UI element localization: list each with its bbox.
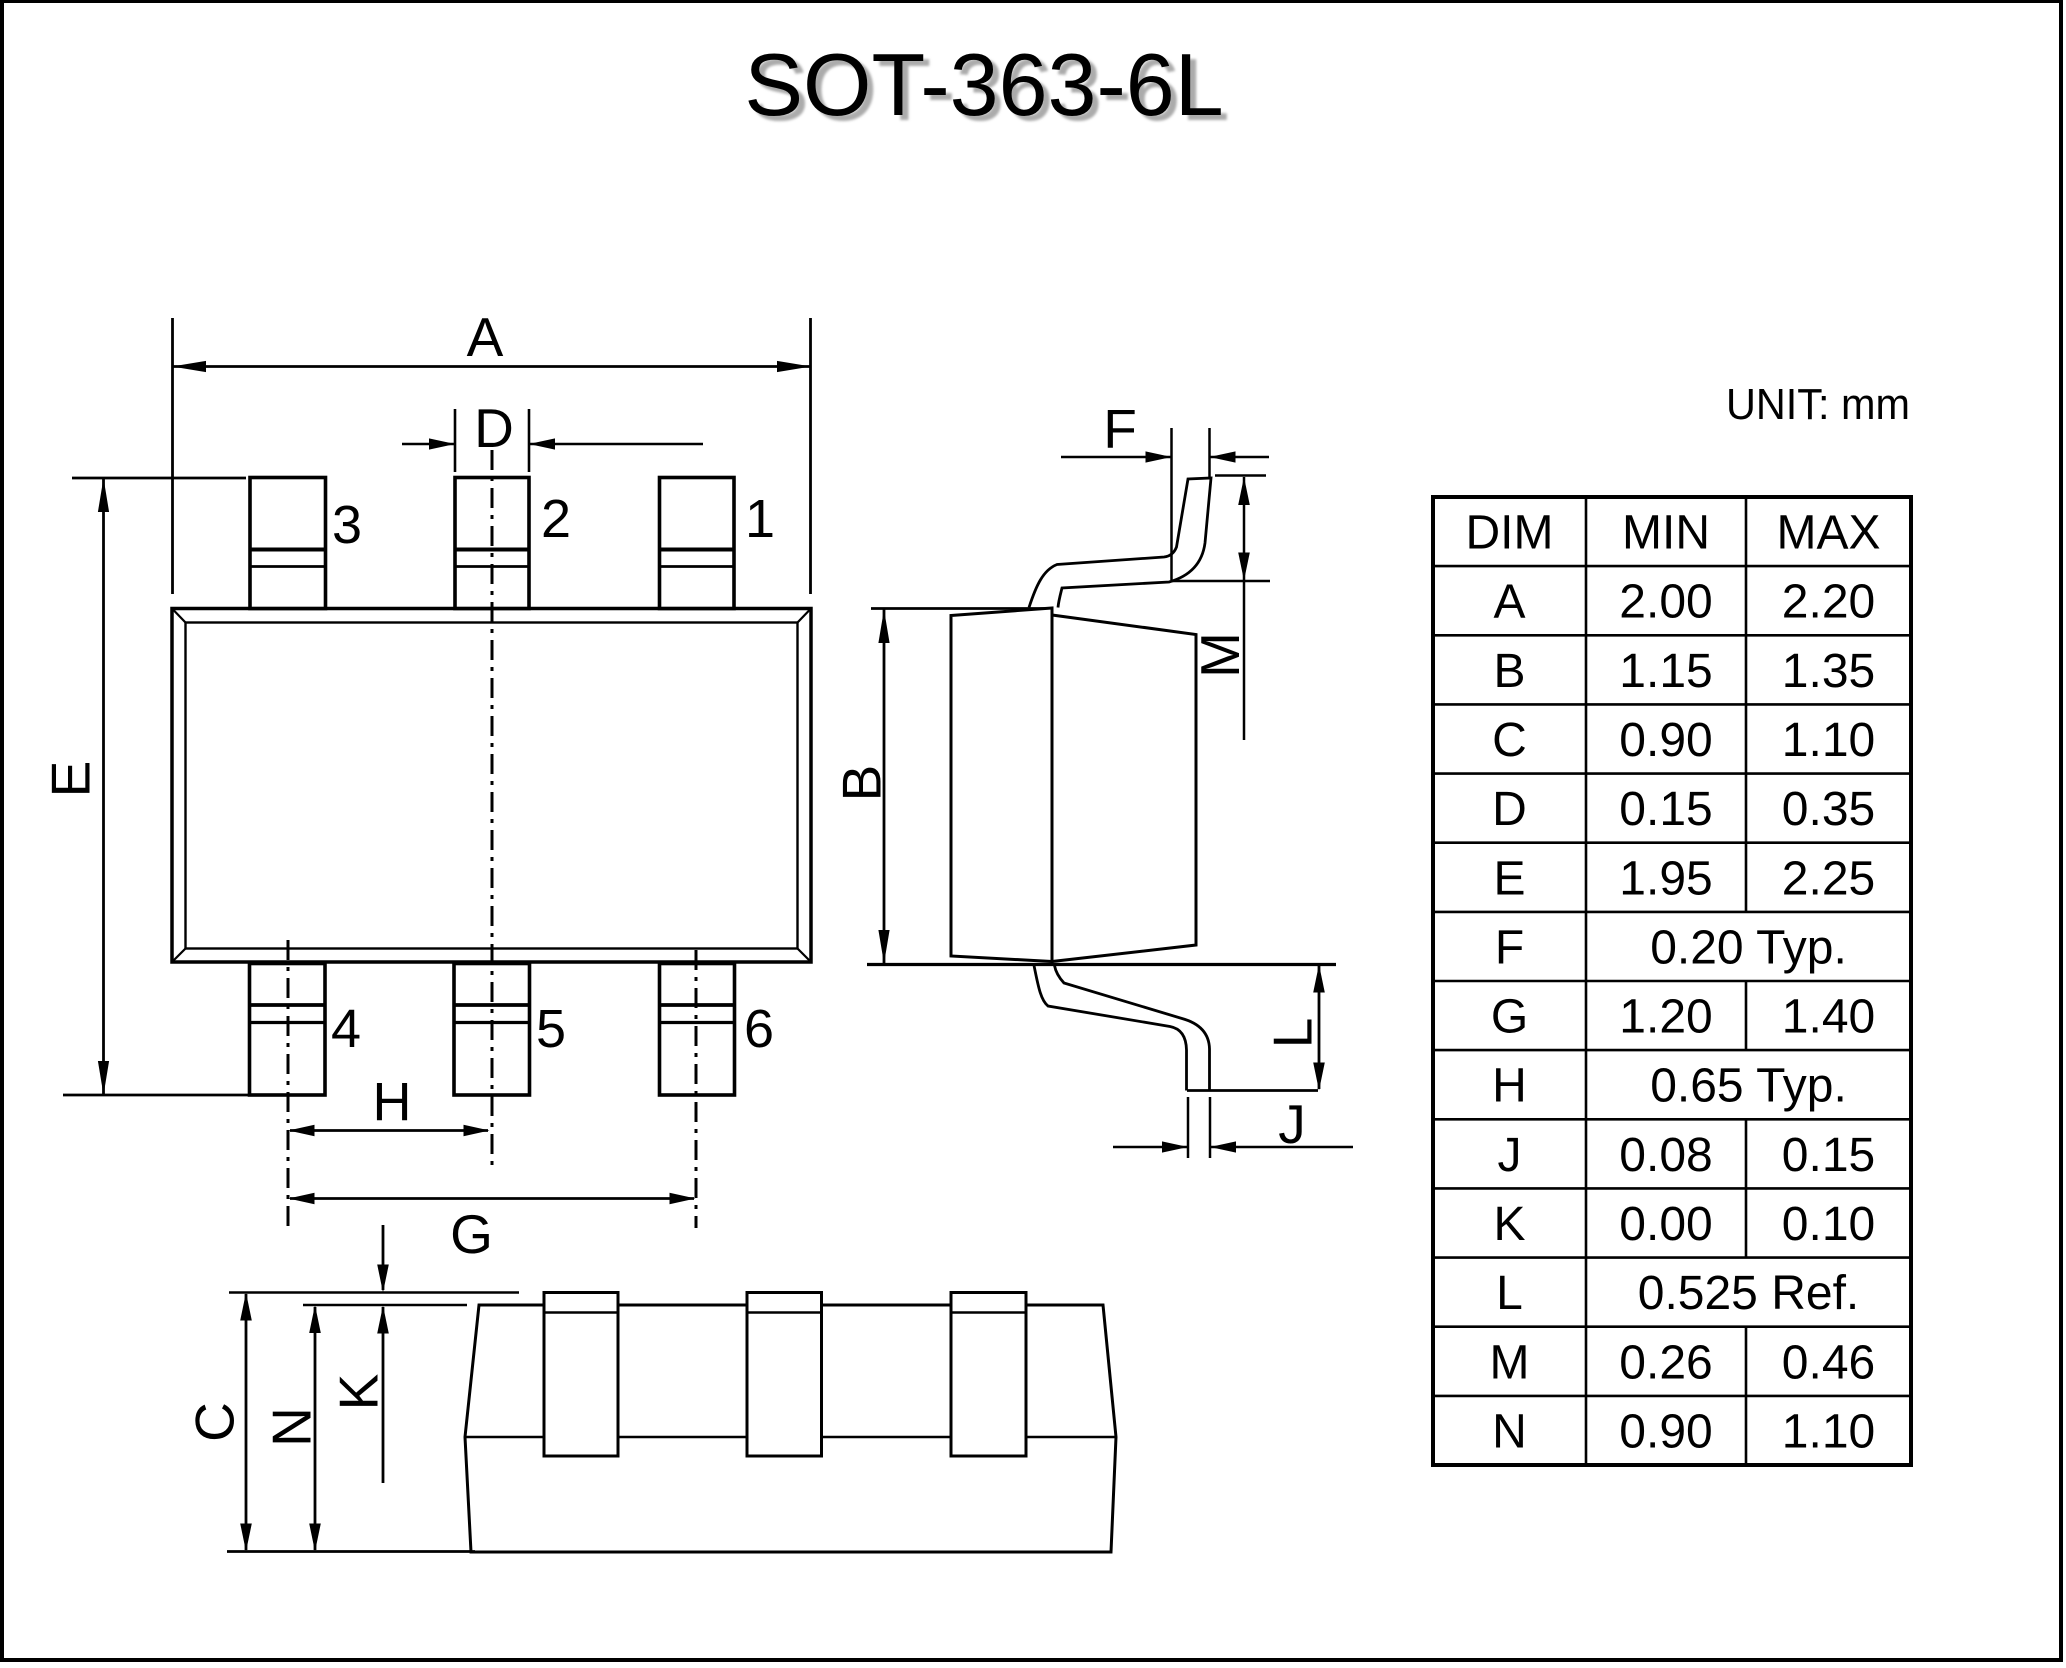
svg-text:L: L (1496, 1267, 1523, 1320)
svg-text:5: 5 (536, 999, 566, 1059)
svg-text:F: F (1103, 398, 1137, 460)
svg-text:K: K (1493, 1198, 1525, 1251)
svg-text:J: J (1498, 1129, 1522, 1182)
svg-text:UNIT: mm: UNIT: mm (1726, 380, 1910, 429)
svg-text:A: A (467, 306, 504, 368)
svg-text:M: M (1490, 1336, 1530, 1389)
svg-text:SOT-363-6L: SOT-363-6L (744, 35, 1223, 134)
svg-text:G: G (450, 1203, 493, 1265)
svg-text:0.08: 0.08 (1619, 1129, 1712, 1182)
svg-text:MIN: MIN (1622, 507, 1710, 560)
svg-text:H: H (373, 1072, 412, 1132)
svg-text:E: E (40, 761, 102, 798)
svg-text:0.90: 0.90 (1619, 1405, 1712, 1458)
svg-text:0.90: 0.90 (1619, 714, 1712, 767)
svg-text:2.00: 2.00 (1619, 576, 1712, 629)
svg-text:N: N (261, 1407, 323, 1447)
svg-text:1.40: 1.40 (1782, 991, 1875, 1044)
svg-text:6: 6 (744, 999, 774, 1059)
svg-text:0.00: 0.00 (1619, 1198, 1712, 1251)
svg-text:N: N (1492, 1405, 1527, 1458)
svg-text:C: C (1492, 714, 1527, 767)
svg-text:2: 2 (541, 489, 571, 549)
svg-text:2.25: 2.25 (1782, 852, 1875, 905)
svg-text:0.35: 0.35 (1782, 783, 1875, 836)
svg-text:B: B (1493, 645, 1525, 698)
svg-text:0.10: 0.10 (1782, 1198, 1875, 1251)
svg-text:0.65 Typ.: 0.65 Typ. (1650, 1060, 1847, 1113)
svg-text:DIM: DIM (1466, 507, 1554, 560)
svg-text:1: 1 (745, 489, 775, 549)
svg-text:B: B (831, 765, 893, 802)
svg-text:0.46: 0.46 (1782, 1336, 1875, 1389)
svg-text:1.20: 1.20 (1619, 991, 1712, 1044)
svg-text:0.20 Typ.: 0.20 Typ. (1650, 921, 1847, 974)
svg-text:1.95: 1.95 (1619, 852, 1712, 905)
svg-text:C: C (184, 1402, 246, 1442)
svg-text:1.15: 1.15 (1619, 645, 1712, 698)
svg-text:A: A (1493, 576, 1525, 629)
svg-text:MAX: MAX (1776, 507, 1880, 560)
svg-text:L: L (1262, 1018, 1324, 1049)
svg-text:1.10: 1.10 (1782, 714, 1875, 767)
svg-text:0.525 Ref.: 0.525 Ref. (1638, 1267, 1859, 1320)
svg-text:G: G (1491, 991, 1528, 1044)
svg-text:0.15: 0.15 (1782, 1129, 1875, 1182)
svg-text:3: 3 (332, 495, 362, 555)
svg-text:D: D (474, 397, 514, 459)
svg-text:M: M (1189, 632, 1251, 678)
svg-text:H: H (1492, 1060, 1527, 1113)
svg-text:0.15: 0.15 (1619, 783, 1712, 836)
svg-text:1.35: 1.35 (1782, 645, 1875, 698)
svg-text:J: J (1278, 1093, 1306, 1155)
svg-text:K: K (328, 1373, 390, 1410)
svg-text:1.10: 1.10 (1782, 1405, 1875, 1458)
svg-text:D: D (1492, 783, 1527, 836)
svg-text:4: 4 (331, 999, 361, 1059)
svg-text:F: F (1495, 921, 1524, 974)
svg-text:0.26: 0.26 (1619, 1336, 1712, 1389)
svg-text:E: E (1493, 852, 1525, 905)
svg-text:2.20: 2.20 (1782, 576, 1875, 629)
